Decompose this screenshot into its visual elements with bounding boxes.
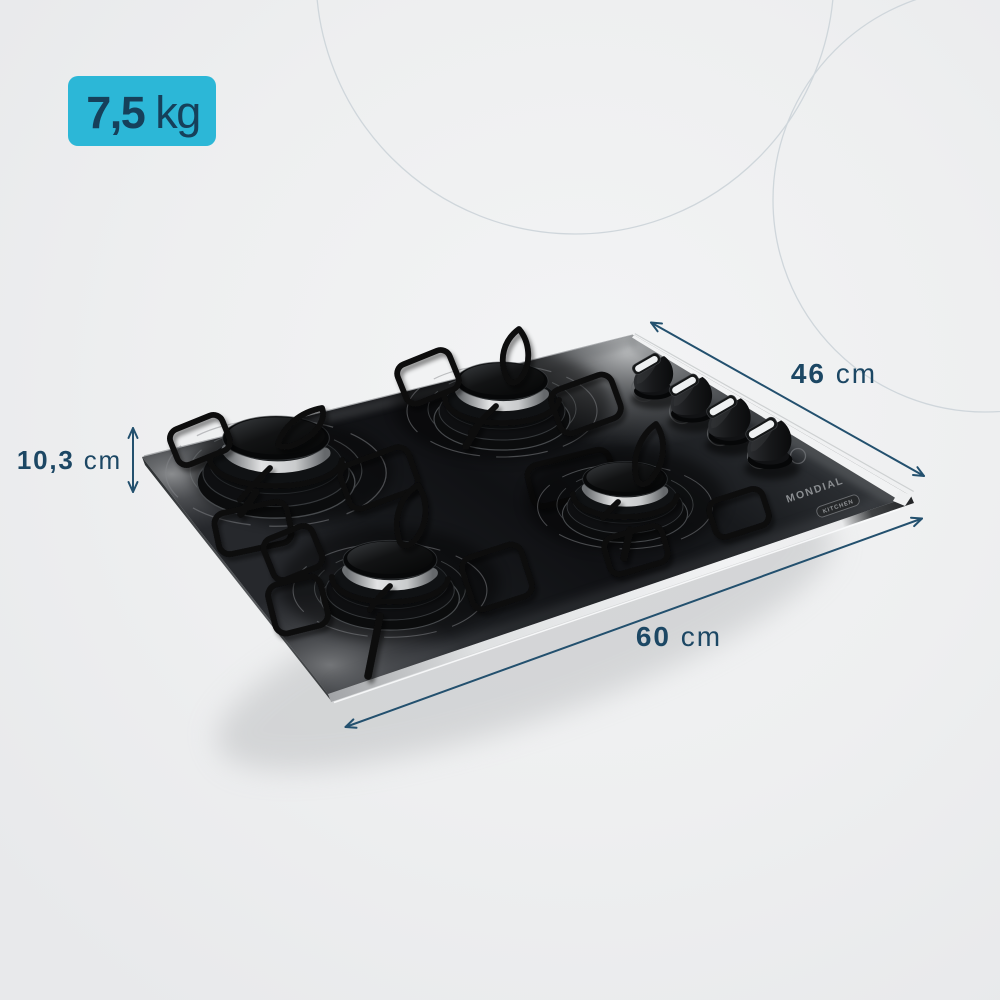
svg-text:10,3 cm: 10,3 cm	[17, 445, 122, 475]
svg-text:7,5 kg: 7,5 kg	[86, 87, 200, 138]
svg-text:60 cm: 60 cm	[636, 621, 722, 652]
svg-text:46 cm: 46 cm	[791, 358, 877, 389]
